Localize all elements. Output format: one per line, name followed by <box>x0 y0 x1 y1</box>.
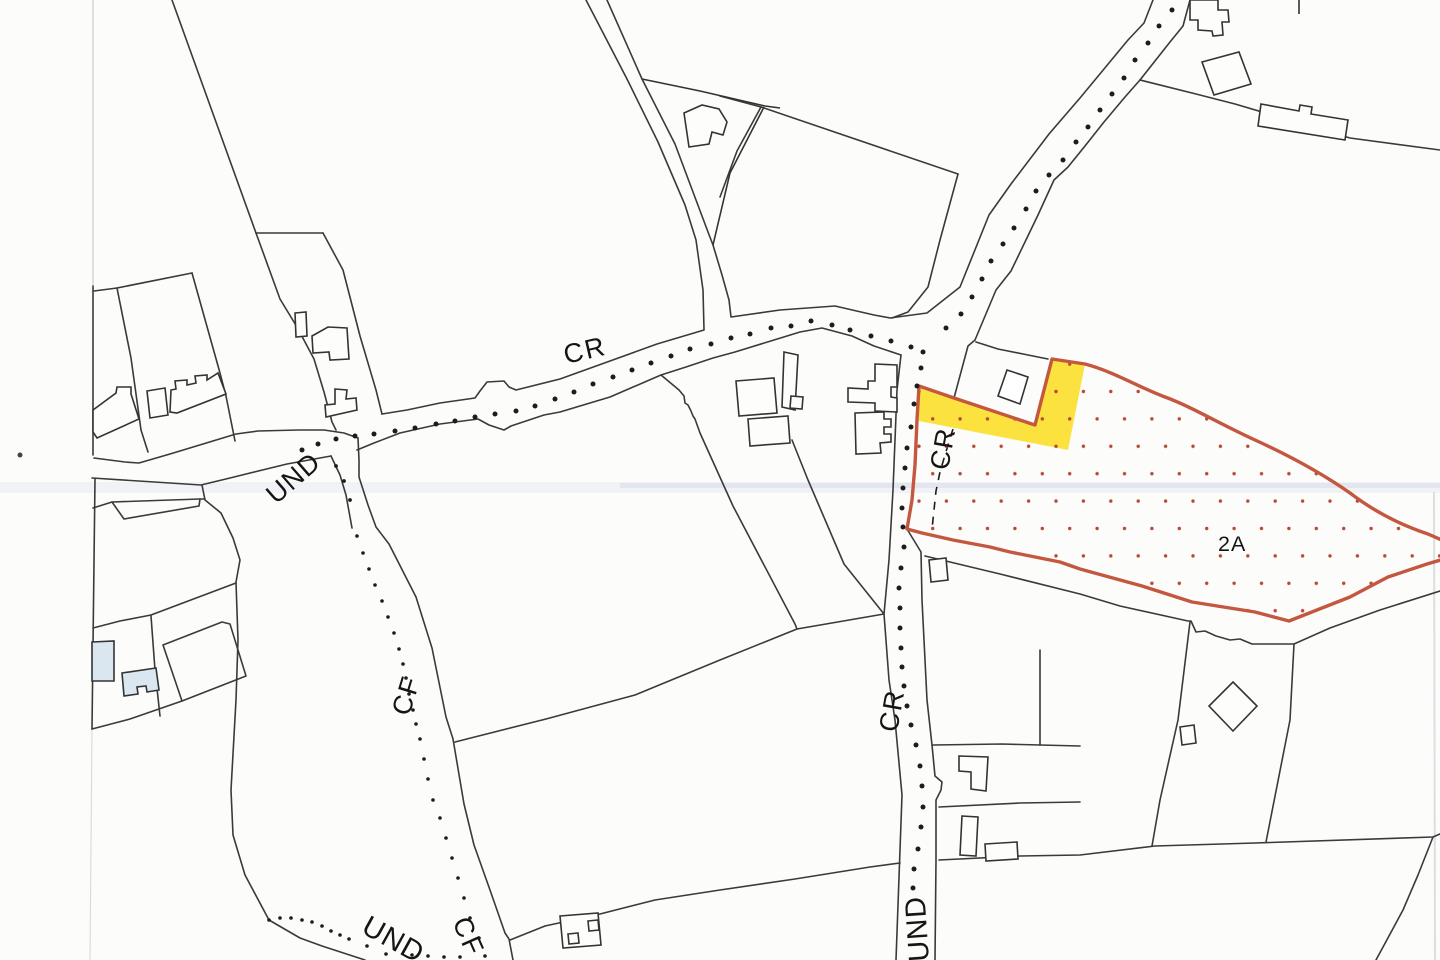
svg-text:2A: 2A <box>1218 532 1246 556</box>
svg-text:UND: UND <box>899 895 936 960</box>
